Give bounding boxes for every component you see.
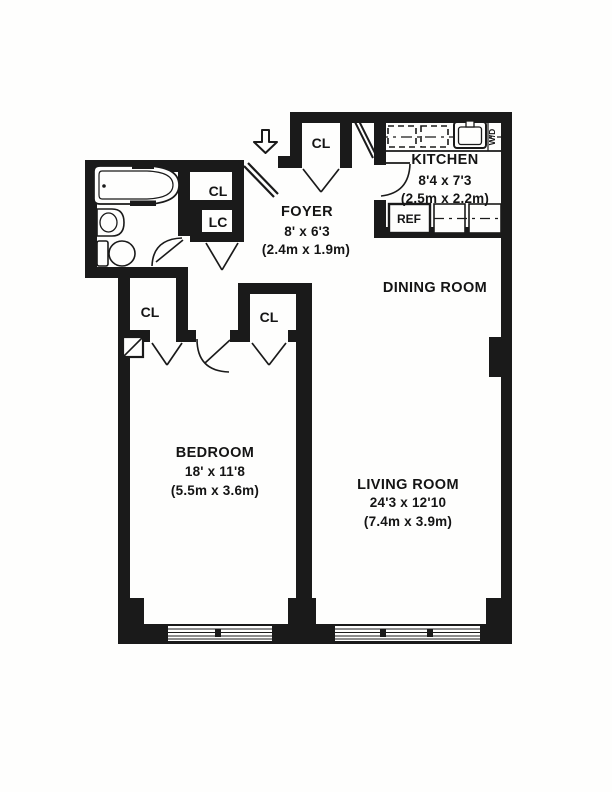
bedroom-closet-left-label: CL	[141, 304, 160, 320]
foyer-size-imperial: 8' x 6'3	[284, 224, 330, 239]
bedroom-closet-right-label: CL	[260, 309, 279, 325]
linen-closet-label: LC	[209, 214, 228, 230]
bathroom-sink	[97, 209, 124, 236]
kitchen-size-metric: (2.5m x 2.2m)	[401, 191, 489, 206]
dining-room-name: DINING ROOM	[383, 280, 487, 296]
floor-plan: FOYER 8' x 6'3 (2.4m x 1.9m) KITCHEN 8'4…	[0, 0, 612, 792]
bedroom-window	[168, 626, 272, 641]
corner-unit-marker	[123, 337, 143, 357]
kitchen-size-imperial: 8'4 x 7'3	[418, 173, 472, 188]
living-room-size-imperial: 24'3 x 12'10	[370, 495, 446, 510]
bathtub	[94, 164, 179, 207]
living-room-window	[335, 626, 480, 641]
washer-dryer-label: W/D	[487, 129, 497, 146]
hall-closet-label: CL	[209, 183, 228, 199]
bedroom-name: BEDROOM	[176, 445, 255, 461]
foyer-name: FOYER	[281, 204, 333, 220]
living-room-name: LIVING ROOM	[357, 477, 459, 493]
bedroom-size-imperial: 18' x 11'8	[185, 464, 246, 479]
entry-closet-label: CL	[312, 135, 331, 151]
kitchen-name: KITCHEN	[411, 152, 478, 168]
living-room-label: LIVING ROOM 24'3 x 12'10 (7.4m x 3.9m)	[357, 477, 459, 529]
bedroom-size-metric: (5.5m x 3.6m)	[171, 483, 259, 498]
living-room-size-metric: (7.4m x 3.9m)	[364, 514, 452, 529]
foyer-size-metric: (2.4m x 1.9m)	[262, 242, 350, 257]
toilet	[97, 241, 135, 266]
kitchen-sink	[454, 121, 486, 148]
refrigerator-label: REF	[397, 212, 421, 226]
